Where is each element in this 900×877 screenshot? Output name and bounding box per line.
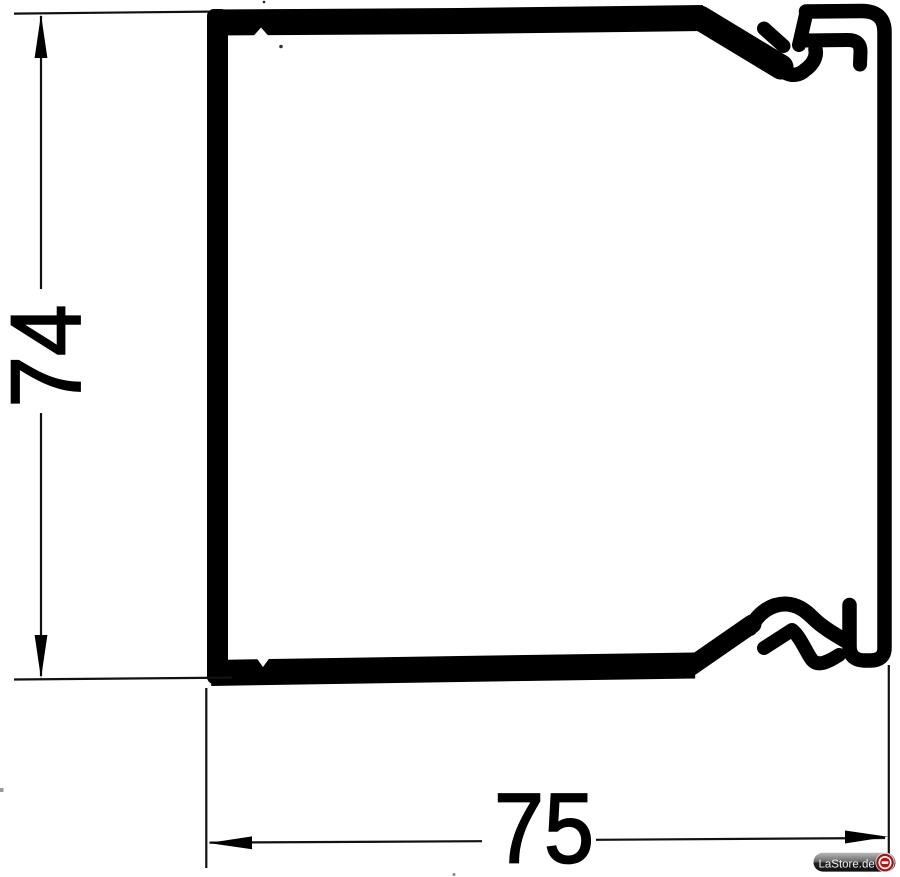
svg-text:LaStore.de: LaStore.de [819,859,875,871]
svg-text:74: 74 [0,305,101,408]
svg-text:75: 75 [494,773,594,877]
